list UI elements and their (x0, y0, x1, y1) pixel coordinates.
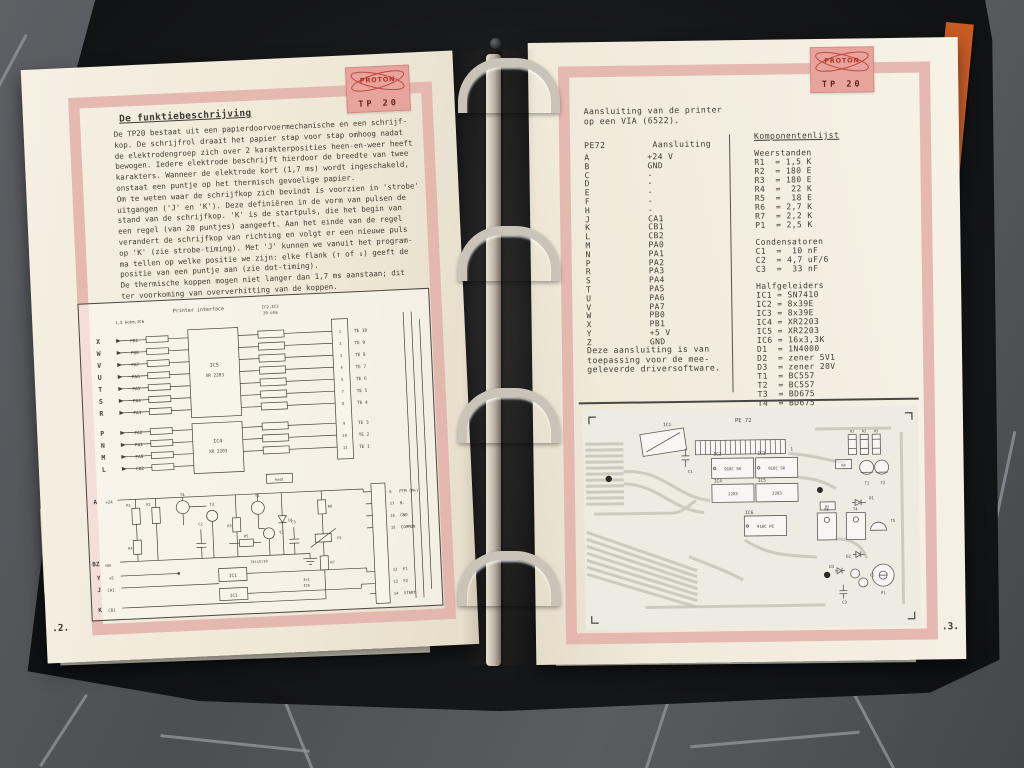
svg-text:R3: R3 (874, 429, 878, 433)
svg-text:T2: T2 (279, 530, 285, 535)
pin-table: A+24 VBGNDC-D-E-F-H-JCA1KCB1LCB2MPA0NPA1… (584, 153, 676, 348)
svg-text:R2: R2 (862, 429, 866, 433)
svg-text:+5: +5 (109, 575, 115, 580)
svg-text:39 ohm: 39 ohm (263, 310, 278, 316)
svg-text:TE 6: TE 6 (356, 376, 367, 382)
svg-text:N: N (101, 442, 105, 450)
svg-text:U: U (98, 374, 102, 382)
svg-text:6: 6 (389, 489, 392, 494)
svg-text:TE 3: TE 3 (358, 420, 369, 426)
body-text: De TP20 bestaat uit een papierdoorvoerme… (114, 116, 424, 302)
svg-text:2: 2 (339, 341, 342, 346)
svg-text:+24: +24 (105, 499, 113, 504)
svg-text:D3: D3 (829, 564, 834, 569)
svg-text:V: V (97, 362, 101, 370)
component-list: Komponentenlijst WeerstandenR1 = 1,5 KR2… (754, 131, 843, 417)
svg-text:A: A (93, 499, 97, 506)
svg-text:C3: C3 (291, 520, 296, 524)
svg-text:TE 7: TE 7 (355, 364, 366, 370)
svg-text:TE 5: TE 5 (357, 388, 368, 394)
svg-text:12: 12 (393, 567, 398, 572)
svg-text:PA6: PA6 (132, 374, 141, 380)
proton-stamp: PROTON TP 20 (810, 46, 875, 93)
stone-joint (284, 702, 315, 768)
svg-text:916C PE: 916C PE (757, 524, 775, 529)
svg-text:P1: P1 (337, 536, 342, 540)
stone-joint (160, 734, 309, 753)
svg-text:F2: F2 (403, 578, 409, 583)
svg-text:TE 4: TE 4 (357, 400, 368, 406)
svg-text:C2: C2 (198, 522, 203, 526)
svg-text:PB1: PB1 (130, 338, 139, 344)
svg-text:COMMON: COMMON (401, 524, 416, 530)
svg-text:T4: T4 (853, 506, 858, 511)
svg-text:IC4: IC4 (213, 438, 222, 444)
svg-text:R1: R1 (850, 430, 854, 434)
svg-text:XR 2203: XR 2203 (205, 372, 224, 379)
stone-joint (39, 694, 88, 767)
svg-text:M-: M- (400, 500, 405, 505)
pcb-layout-diagram: PE 721IC1C1IC2IC3916C SR916C SRIC4IC5220… (583, 406, 921, 631)
svg-text:R5: R5 (244, 534, 249, 538)
svg-text:T1: T1 (864, 480, 869, 485)
svg-text:IC5: IC5 (758, 478, 767, 484)
photo-of-binder: 88J/8/9 µPS-1 PROTON TP 20 De funktiebes… (0, 0, 1024, 768)
svg-text:PA1: PA1 (135, 442, 144, 448)
svg-text:IC2: IC2 (713, 451, 722, 457)
printer-interface-schematic: Printer interface1,5 kohm,IC6IC2,IC339 o… (77, 288, 443, 622)
svg-text:T3: T3 (824, 507, 829, 512)
svg-text:T4: T4 (180, 492, 186, 497)
connection-heading: Aansluiting van de printer op een VIA (6… (584, 104, 723, 126)
svg-text:F1: F1 (403, 566, 409, 571)
model-name: TP 20 (810, 79, 874, 90)
driver-software-note: Deze aansluiting is van toepassing voor … (587, 344, 721, 374)
svg-text:IC6: IC6 (745, 510, 754, 516)
svg-text:IC6: IC6 (303, 584, 310, 588)
svg-text:T3: T3 (209, 502, 215, 507)
svg-text:TE 2: TE 2 (359, 432, 370, 438)
svg-text:TE 10: TE 10 (354, 328, 368, 335)
svg-text:1: 1 (790, 446, 793, 452)
svg-text:916C SR: 916C SR (724, 466, 742, 471)
svg-text:heat: heat (275, 477, 284, 482)
svg-text:R4: R4 (128, 547, 133, 551)
svg-text:PE 72: PE 72 (735, 418, 752, 424)
component-item: C3 = 33 nF (756, 264, 841, 274)
svg-text:IC1: IC1 (663, 422, 672, 428)
right-page: PROTON TP 20 Aansluiting van de printer … (528, 37, 967, 665)
svg-text:T5: T5 (890, 518, 895, 523)
svg-text:3: 3 (340, 353, 343, 358)
svg-text:PA7: PA7 (131, 362, 140, 368)
svg-text:K: K (98, 607, 102, 614)
pin-table-header: PE72 Aansluiting (584, 138, 711, 150)
svg-text:GND: GND (400, 512, 408, 517)
svg-text:IC2,IC3: IC2,IC3 (262, 304, 280, 310)
svg-text:IC4: IC4 (714, 478, 723, 484)
svg-text:R1: R1 (126, 504, 131, 508)
svg-text:C2: C2 (870, 573, 874, 577)
svg-text:T2: T2 (880, 480, 885, 485)
svg-text:R6: R6 (328, 504, 333, 508)
svg-text:PB0: PB0 (131, 350, 140, 356)
svg-text:PTM (M+): PTM (M+) (399, 487, 418, 493)
svg-text:17: 17 (390, 501, 395, 506)
svg-text:3x1: 3x1 (303, 578, 310, 582)
svg-text:C3: C3 (842, 600, 847, 605)
component-item: P1 = 2,5 K (755, 220, 840, 230)
component-list-title: Komponentenlijst (754, 131, 839, 141)
svg-text:R: R (99, 410, 103, 418)
svg-text:C1: C1 (688, 469, 693, 474)
svg-text:14: 14 (394, 590, 400, 595)
svg-text:R3: R3 (227, 524, 232, 528)
svg-text:Printer interface: Printer interface (173, 306, 224, 314)
brand-name: PROTON (810, 56, 874, 65)
svg-text:PA4: PA4 (133, 398, 142, 404)
svg-text:PA5: PA5 (132, 386, 141, 392)
stone-joint (690, 731, 860, 749)
svg-text:7: 7 (341, 389, 344, 394)
svg-text:D2: D2 (846, 554, 851, 559)
svg-text:P: P (100, 430, 104, 438)
svg-text:TE 9: TE 9 (354, 340, 365, 346)
page-number: .2. (52, 622, 70, 634)
svg-text:START: START (404, 590, 417, 596)
svg-text:74(LS)10: 74(LS)10 (250, 559, 267, 564)
svg-text:916C SR: 916C SR (768, 465, 786, 470)
svg-text:IC3: IC3 (757, 451, 766, 457)
svg-text:R2: R2 (146, 503, 151, 507)
svg-text:IC1: IC1 (229, 573, 238, 579)
proton-stamp: PROTON TP 20 (345, 64, 411, 113)
svg-text:J: J (97, 587, 101, 594)
svg-text:IC5: IC5 (210, 362, 219, 368)
svg-text:XR 2203: XR 2203 (209, 448, 228, 455)
pin-table-col2: Aansluiting (652, 138, 711, 149)
svg-text:X: X (96, 338, 100, 346)
svg-text:R4: R4 (841, 464, 845, 468)
svg-text:R7: R7 (330, 560, 335, 564)
component-sections: WeerstandenR1 = 1,5 KR2 = 180 ER3 = 180 … (754, 148, 843, 417)
svg-text:W: W (97, 350, 101, 358)
svg-text:L: L (102, 466, 106, 474)
svg-text:CB2: CB2 (136, 466, 145, 472)
page-number: .3. (942, 621, 959, 632)
svg-text:CA1: CA1 (107, 587, 115, 592)
svg-text:GND: GND (105, 564, 111, 568)
svg-text:5: 5 (341, 377, 344, 382)
svg-text:16: 16 (390, 513, 396, 518)
svg-text:2203: 2203 (728, 491, 738, 496)
svg-text:IC1: IC1 (230, 593, 239, 599)
svg-text:PA3: PA3 (133, 410, 142, 416)
left-page: PROTON TP 20 De funktiebeschrijving De T… (21, 51, 480, 664)
svg-text:BZ: BZ (92, 561, 100, 568)
svg-text:PA2: PA2 (134, 430, 143, 436)
svg-text:T1: T1 (255, 493, 261, 498)
svg-text:15: 15 (391, 525, 396, 530)
spine-knob (490, 38, 501, 49)
svg-text:CB1: CB1 (108, 607, 116, 612)
svg-text:1,5 kohm,IC6: 1,5 kohm,IC6 (115, 319, 145, 325)
svg-text:13: 13 (393, 579, 398, 584)
svg-text:T: T (98, 386, 102, 394)
svg-text:S: S (99, 398, 103, 406)
svg-text:P1: P1 (881, 590, 886, 595)
model-name: TP 20 (346, 97, 410, 110)
svg-text:PA0: PA0 (135, 454, 144, 460)
svg-text:Y: Y (97, 575, 101, 582)
svg-text:TE 1: TE 1 (359, 444, 370, 450)
svg-text:TE 8: TE 8 (355, 352, 366, 358)
svg-text:2203: 2203 (772, 491, 782, 496)
svg-text:M: M (101, 454, 105, 462)
stone-joint (644, 703, 668, 768)
pin-table-col1: PE72 (584, 139, 647, 150)
svg-text:D1: D1 (869, 495, 874, 500)
